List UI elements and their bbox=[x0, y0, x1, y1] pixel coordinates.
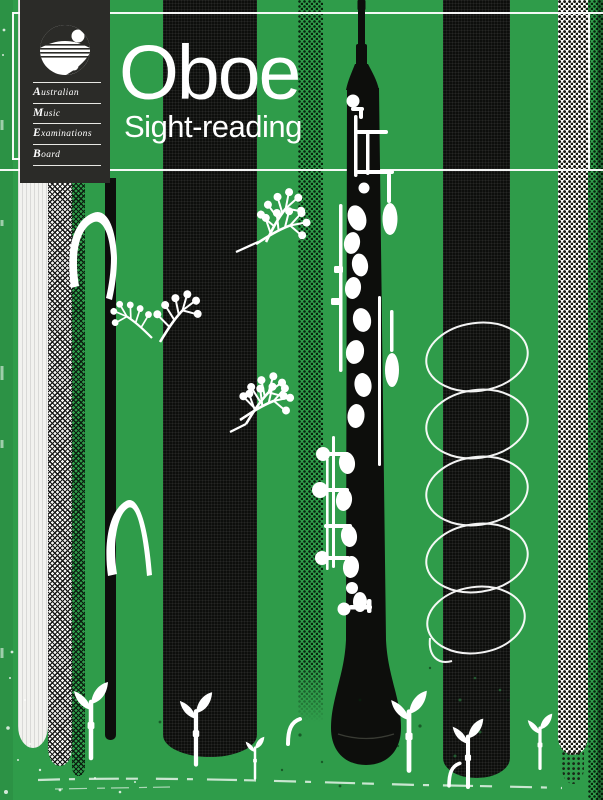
cover-title: Oboe bbox=[119, 38, 302, 109]
publisher-word: Australian bbox=[33, 82, 101, 103]
publisher-word: Examinations bbox=[33, 123, 101, 144]
bent-stalk-decoration bbox=[69, 212, 152, 576]
oboe-keywork bbox=[312, 95, 399, 616]
coil-spring-decoration bbox=[422, 316, 532, 662]
publisher-panel: Australian Music Examinations Board bbox=[20, 0, 110, 183]
seedling-decoration bbox=[74, 682, 552, 787]
berry-sprig-decoration bbox=[108, 184, 313, 432]
cover-subtitle: Sight-reading bbox=[124, 109, 302, 145]
ameb-circle-logo-icon bbox=[39, 24, 91, 76]
publisher-word: Board bbox=[33, 144, 101, 166]
oboe-illustration bbox=[312, 0, 401, 765]
publisher-word: Music bbox=[33, 103, 101, 124]
book-cover: Australian Music Examinations Board Oboe… bbox=[0, 0, 603, 800]
publisher-name: Australian Music Examinations Board bbox=[33, 82, 101, 166]
title-block: Oboe Sight-reading bbox=[119, 38, 302, 145]
